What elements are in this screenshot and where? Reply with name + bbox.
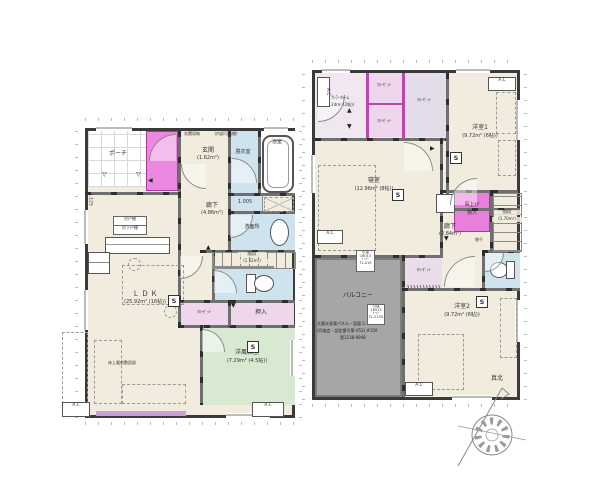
wall xyxy=(315,138,446,141)
window xyxy=(310,155,315,193)
folding-door xyxy=(406,285,441,288)
sash-tag: 引違 16513 ﾄｰﾒｰ TL-2130 xyxy=(367,304,385,325)
note-label: (内部可動棚) xyxy=(207,132,245,137)
ac-unit: A.C xyxy=(62,402,90,417)
window xyxy=(264,126,288,131)
wall xyxy=(366,103,402,105)
washer-space xyxy=(264,197,294,212)
stairs-2f xyxy=(493,193,522,252)
grid-ruler xyxy=(85,422,295,425)
storage-label: 吊上げ xyxy=(458,202,486,208)
sofa xyxy=(122,384,186,404)
desk xyxy=(498,140,516,176)
ac-unit: A.C xyxy=(317,230,343,244)
room-label: ｸﾛｰｾﾞｯﾄ xyxy=(366,119,402,124)
room-label: ポーチ xyxy=(100,150,136,157)
sash-tag-line: TL-015 xyxy=(357,262,374,266)
room-label: 階段 xyxy=(238,252,266,257)
marker-icon: ▲ xyxy=(206,245,211,251)
marker-icon: ▽ xyxy=(136,172,141,178)
deck-strip xyxy=(96,411,186,416)
wall xyxy=(85,192,178,195)
dimension: 1.125 xyxy=(87,186,92,212)
grid-ruler xyxy=(524,70,527,400)
wall xyxy=(402,73,405,138)
dimension: 1.005 xyxy=(229,199,261,205)
room-label: ＬＤＫ xyxy=(124,290,168,298)
sofa xyxy=(94,340,122,404)
wall xyxy=(178,131,181,193)
wall xyxy=(402,288,520,291)
room-area: (7.29m² (4.5帖)) xyxy=(214,358,280,364)
marker-icon: ◀ xyxy=(148,178,153,184)
cupboard-tag: 吊下戸棚 xyxy=(113,225,147,235)
room-closet-2f xyxy=(402,73,446,137)
ac-unit: A.C xyxy=(488,77,516,91)
stove xyxy=(88,252,110,274)
window xyxy=(456,68,490,73)
room-area: (1.62m²) xyxy=(184,155,232,161)
room-area: (1.62m²) xyxy=(234,259,270,264)
toilet-tank xyxy=(506,261,515,279)
marker-icon: ▼ xyxy=(347,124,352,130)
floor-plan-page: { "meta": {"type": "house-floor-plan", "… xyxy=(0,0,600,487)
room-label: 階段 xyxy=(494,210,520,215)
room-label: 押入 xyxy=(244,309,278,316)
marker-icon: ▲ xyxy=(347,108,352,114)
washbasin xyxy=(270,219,289,246)
smoke-detector-mark: S xyxy=(476,296,488,308)
room-area: (9.72m² (6帖)) xyxy=(434,312,490,318)
chair xyxy=(128,258,141,271)
sash-tag-line: TL-2130 xyxy=(368,316,384,320)
toilet-bowl xyxy=(254,275,274,292)
marker-icon: ▶ xyxy=(430,146,435,152)
wall xyxy=(258,131,261,195)
wall xyxy=(178,325,295,328)
floor-note: 床上暖房敷設部 xyxy=(96,361,148,366)
room-area: (4.86m²) xyxy=(190,210,234,216)
wall xyxy=(315,255,442,258)
compass-rose xyxy=(450,380,535,475)
wall xyxy=(178,300,295,303)
note-label: 玄関収納 xyxy=(178,132,206,137)
kitchen-counter xyxy=(105,237,170,254)
smoke-detector-mark: S xyxy=(392,189,404,201)
room-label: 廊下 xyxy=(192,202,232,209)
ac-unit: A.C xyxy=(405,382,433,396)
wall xyxy=(402,255,405,397)
room-porch xyxy=(88,131,146,187)
marker-icon: ▼ xyxy=(444,236,449,242)
ac-unit: A.C xyxy=(252,402,284,417)
room-label: バルコニー xyxy=(332,292,384,299)
smoke-detector-mark: S xyxy=(247,341,259,353)
solar-note: (同協会・認定番号第-052) #150 xyxy=(317,329,399,334)
grid-ruler xyxy=(312,60,520,63)
room-label: 浴室 xyxy=(262,139,292,145)
sash-tag: 引違 16013 ﾄｰﾒｰ TL-015 xyxy=(356,250,375,272)
room-label: ｸﾛｰｾﾞｯﾄ xyxy=(366,83,402,88)
room-area: (9.72m² (6帖)) xyxy=(452,133,508,139)
room-label: 脱衣室 xyxy=(228,149,258,155)
storage-label: 物入 xyxy=(458,210,486,216)
marker-icon: ▼ xyxy=(231,303,236,309)
room-closet-2f xyxy=(405,258,442,288)
room-closet-2f xyxy=(366,73,402,103)
ac-unit: A.C xyxy=(317,77,330,107)
smoke-detector-mark: S xyxy=(450,152,462,164)
room-label: ｸﾛｰｾﾞｯﾄ xyxy=(404,98,444,103)
solar-note: 第1238-0948 xyxy=(340,336,398,341)
grid-ruler xyxy=(302,70,305,400)
marker-icon: ▽ xyxy=(102,172,107,178)
room-area: (1.70m²) xyxy=(492,217,522,222)
room-label: 洋室1 xyxy=(460,124,500,131)
window xyxy=(290,340,295,376)
room-label: 廊下 xyxy=(432,223,468,230)
solar-note: 太陽光発電パネル・容量 5.10kW xyxy=(317,322,399,327)
wall xyxy=(262,195,263,212)
grid-ruler xyxy=(85,118,295,121)
note-label: 物干 xyxy=(468,238,490,243)
window xyxy=(96,126,132,131)
outdoor-service-area xyxy=(62,332,88,404)
room-label: 洗面所 xyxy=(234,224,270,230)
window xyxy=(83,290,88,330)
window xyxy=(322,68,350,73)
room-label: 玄関 xyxy=(184,147,232,154)
desk xyxy=(500,298,517,358)
window xyxy=(83,210,88,244)
smoke-detector-mark: S xyxy=(168,295,180,307)
room-area: (2.84m²) xyxy=(430,231,470,237)
room-label: 寝室 xyxy=(356,177,392,184)
room-label: ｸﾛｰｾﾞｯﾄ xyxy=(405,268,442,273)
room-label: ｸﾛｰｾﾞｯﾄ xyxy=(182,310,226,315)
